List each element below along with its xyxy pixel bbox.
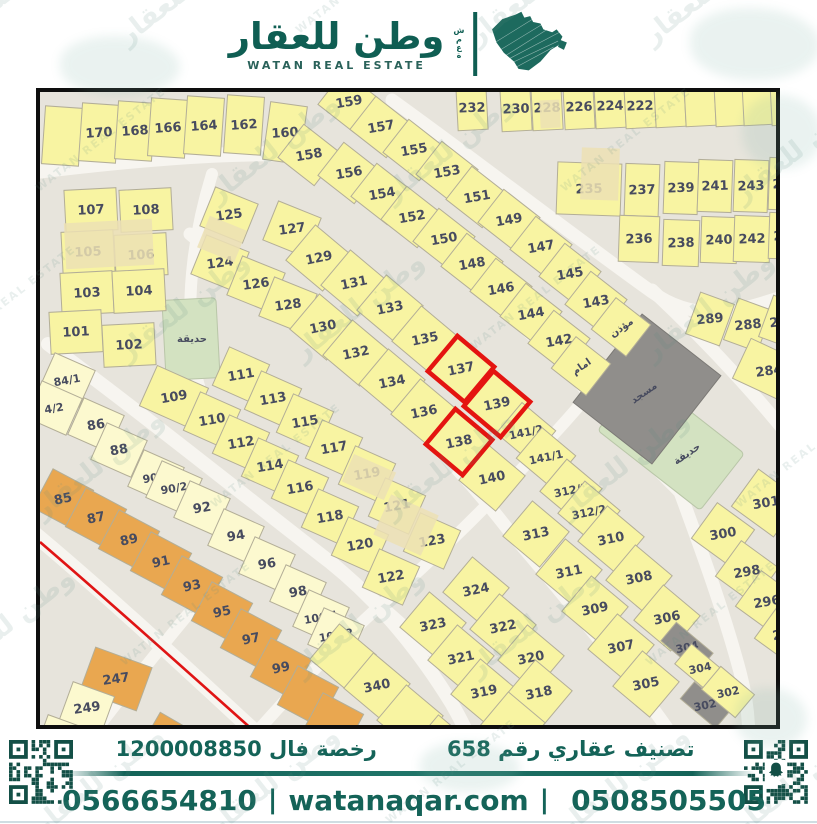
phone-number-1[interactable]: 0566654810: [62, 784, 257, 817]
header: وطن للعقار WATAN REAL ESTATE شمعة: [0, 0, 817, 88]
parcel-232: 232: [456, 92, 488, 131]
svg-text:244: 244: [773, 229, 776, 245]
svg-text:104: 104: [125, 283, 153, 299]
watermark-text: وطن للعقار: [812, 246, 817, 367]
svg-text:107: 107: [77, 202, 105, 218]
svg-text:164: 164: [190, 118, 218, 135]
classification: تصنيف عقاري رقم 658: [409, 737, 734, 761]
svg-text:94: 94: [226, 528, 246, 546]
parcel-240: 240: [700, 216, 738, 263]
parcel-237: 237: [624, 163, 660, 216]
plot-map: 1701681661641621601591571551531511491471…: [40, 92, 776, 725]
svg-text:226: 226: [565, 100, 593, 116]
svg-text:242: 242: [738, 232, 766, 248]
parcel-162: 162: [224, 95, 265, 155]
brand-vertical-text: شمعة: [453, 27, 464, 61]
svg-text:103: 103: [73, 285, 101, 301]
parcel: [654, 92, 686, 128]
website-link[interactable]: watanaqar.com: [288, 784, 528, 817]
svg-text:108: 108: [132, 202, 160, 218]
svg-text:166: 166: [154, 120, 182, 137]
saudi-map-icon: [486, 5, 574, 83]
parcel: [42, 106, 83, 166]
logo: وطن للعقار WATAN REAL ESTATE شمعة: [229, 5, 575, 83]
parcel-101: 101: [49, 310, 103, 355]
svg-text:288: 288: [734, 317, 763, 335]
brand-english: WATAN REAL ESTATE: [229, 59, 445, 72]
svg-text:284: 284: [755, 362, 776, 381]
svg-text:241: 241: [701, 179, 729, 195]
svg-text:240: 240: [705, 233, 733, 249]
map-frame: 1701681661641621601591571551531511491471…: [36, 88, 780, 729]
parcel-164: 164: [184, 96, 225, 156]
brand-text: وطن للعقار WATAN REAL ESTATE: [229, 16, 445, 73]
svg-text:92: 92: [192, 500, 212, 518]
parcel-230: 230: [500, 92, 532, 132]
parcel: [684, 92, 716, 127]
map-label: حديقة: [177, 334, 207, 345]
building: [64, 219, 154, 270]
svg-text:238: 238: [667, 236, 695, 252]
parcel-242: 242: [733, 215, 771, 262]
parcel: [714, 92, 746, 127]
building: [539, 99, 560, 128]
fal-license: رخصة فال 1200008850: [84, 737, 409, 761]
parcel-241: 241: [697, 159, 733, 212]
parcel-170: 170: [79, 103, 120, 163]
brand-arabic: وطن للعقار: [229, 16, 445, 59]
parcel-103: 103: [60, 271, 114, 316]
svg-text:230: 230: [502, 102, 530, 118]
svg-text:239: 239: [667, 181, 695, 197]
parcel-104: 104: [112, 269, 166, 314]
separator: |: [268, 785, 278, 815]
parcel-245: 245: [768, 157, 776, 210]
parcel-102: 102: [102, 323, 156, 368]
footer-divider: [62, 771, 755, 776]
phone-number-2[interactable]: 0508505505: [571, 784, 766, 817]
footer: رخصة فال 1200008850 تصنيف عقاري رقم 658 …: [0, 729, 817, 824]
bottom-strip: [0, 821, 817, 823]
svg-text:168: 168: [121, 123, 149, 140]
svg-text:102: 102: [115, 337, 143, 353]
svg-text:224: 224: [596, 99, 624, 115]
logo-divider-bar: [473, 12, 477, 76]
svg-text:162: 162: [230, 117, 258, 134]
svg-text:101: 101: [62, 324, 90, 340]
svg-text:170: 170: [85, 125, 113, 142]
building: [580, 147, 620, 200]
parcel-224: 224: [594, 92, 626, 129]
parcel-166: 166: [148, 98, 189, 158]
parcel-226: 226: [563, 92, 595, 130]
parcel-239: 239: [663, 161, 699, 214]
svg-text:96: 96: [257, 556, 277, 574]
parcel-244: 244: [768, 212, 776, 259]
svg-text:287: 287: [769, 314, 776, 332]
parcel-243: 243: [733, 159, 769, 212]
parcel-236: 236: [618, 215, 660, 262]
svg-text:222: 222: [626, 99, 654, 115]
svg-text:232: 232: [458, 101, 486, 117]
svg-text:243: 243: [737, 179, 765, 195]
parcel: [742, 92, 774, 126]
svg-text:236: 236: [625, 232, 653, 248]
parcel-222: 222: [624, 92, 656, 129]
svg-text:237: 237: [628, 183, 656, 199]
svg-text:289: 289: [696, 311, 725, 329]
svg-text:245: 245: [772, 177, 776, 193]
watermark-text: وطن للعقار: [812, 562, 817, 683]
separator: |: [540, 785, 550, 815]
parcel-238: 238: [662, 219, 700, 266]
svg-text:88: 88: [109, 442, 129, 460]
